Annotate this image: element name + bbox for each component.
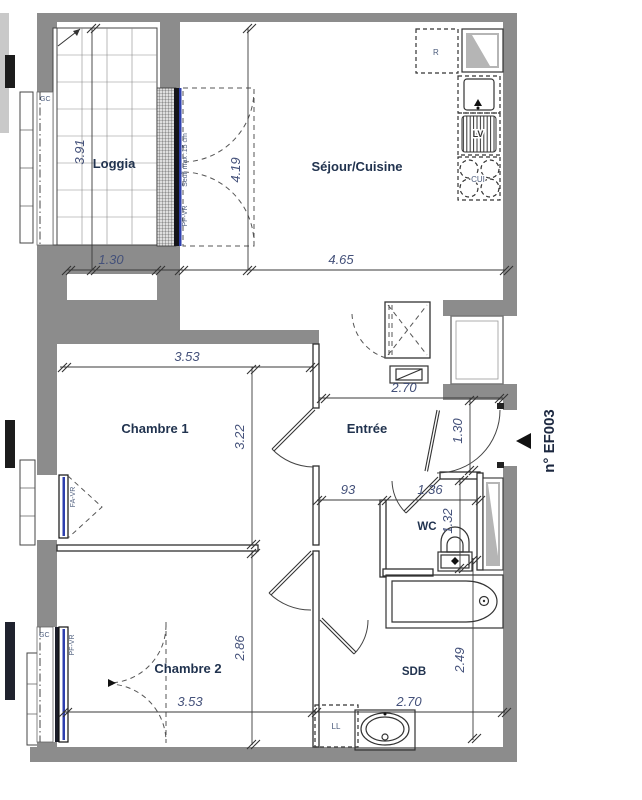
kitchen-window [462, 29, 503, 72]
gc-duct-strip [37, 92, 53, 245]
dishwasher: LV [458, 113, 500, 155]
dim-chambre2-width: 3.53 [177, 694, 203, 709]
dim-sdb-height: 2.49 [452, 647, 467, 673]
loggia-area: GC [37, 28, 157, 245]
entry-closet [352, 302, 430, 358]
fa-vr-window: FA-VR [59, 475, 102, 538]
room-label-sdb: SDB [402, 666, 426, 678]
kitchen-sink [458, 76, 500, 113]
room-label-entree: Entrée [347, 421, 387, 436]
cooktop: CUI [458, 157, 500, 200]
dim-wc-height: 1.32 [440, 508, 455, 534]
hatched-wall-section [157, 88, 176, 246]
seuil-label: Seuil max :15 cm [182, 133, 189, 187]
dim-loggia-width: 1.30 [98, 252, 124, 267]
dim-sdb-width: 2.70 [395, 694, 422, 709]
dim-loggia-height: 3.91 [72, 139, 87, 164]
window-direction-arrow [108, 679, 116, 687]
fa-vr-label: FA-VR [70, 487, 77, 508]
cooktop-label: CUI [471, 175, 485, 184]
unit-number: n° EF003 [541, 409, 558, 473]
dim-sejour-width: 4.65 [328, 252, 354, 267]
balcony-railing [20, 460, 35, 545]
pf-vr-label: PF-VR [182, 206, 189, 227]
bathtub [386, 575, 503, 628]
dim-chambre2-height: 2.86 [232, 635, 247, 662]
entrance-arrow-icon [516, 433, 531, 449]
dishwasher-label: LV [473, 129, 484, 139]
room-label-sejour: Séjour/Cuisine [311, 159, 402, 174]
room-label-loggia: Loggia [93, 156, 136, 171]
room-label-chambre1: Chambre 1 [121, 421, 188, 436]
dim-chambre1-height: 3.22 [232, 424, 247, 450]
neighbour-wall-block [5, 622, 15, 700]
floor-plan-drawing: GC Seuil max :15 cm PF-VR R [0, 0, 642, 800]
room-label-wc: WC [417, 521, 436, 533]
dim-corridor-width: 93 [341, 482, 356, 497]
gc-label: GC [40, 96, 51, 103]
french-door-swing [108, 622, 166, 743]
kitchen-fixtures: R LV CUI [416, 29, 503, 200]
balcony-railing [20, 92, 33, 243]
washbasin [355, 710, 415, 750]
sdb-door [320, 618, 368, 654]
balcony-railing [27, 653, 38, 745]
dim-chambre1-width: 3.53 [174, 349, 200, 364]
dim-entry-depth: 1.30 [450, 418, 465, 444]
chambre1-door [272, 408, 315, 467]
washing-machine: LL [315, 705, 358, 747]
floor-plan: GC Seuil max :15 cm PF-VR R [0, 0, 642, 800]
gc-duct-strip [37, 627, 53, 742]
fridge-label: R [433, 48, 439, 57]
dim-wc-width: 1.36 [417, 482, 443, 497]
room-label-chambre2: Chambre 2 [154, 661, 221, 676]
washing-machine-label: LL [332, 722, 341, 731]
gc-label: GC [39, 632, 50, 639]
technical-shaft [451, 316, 503, 384]
chambre2-door [269, 551, 313, 610]
interior-partitions [57, 344, 483, 747]
unit-marker: n° EF003 [516, 409, 558, 473]
french-door-swing [183, 88, 254, 246]
neighbour-wall-block [5, 420, 15, 468]
dim-sejour-height: 4.19 [228, 157, 243, 182]
pf-vr-label: PF-VR [69, 635, 76, 656]
site-surroundings [0, 13, 38, 745]
bathroom-window [483, 478, 503, 570]
chambre2-window: GC PF-VR [37, 622, 166, 743]
neighbour-wall-block [5, 55, 15, 88]
dim-entree-width: 2.70 [390, 380, 417, 395]
